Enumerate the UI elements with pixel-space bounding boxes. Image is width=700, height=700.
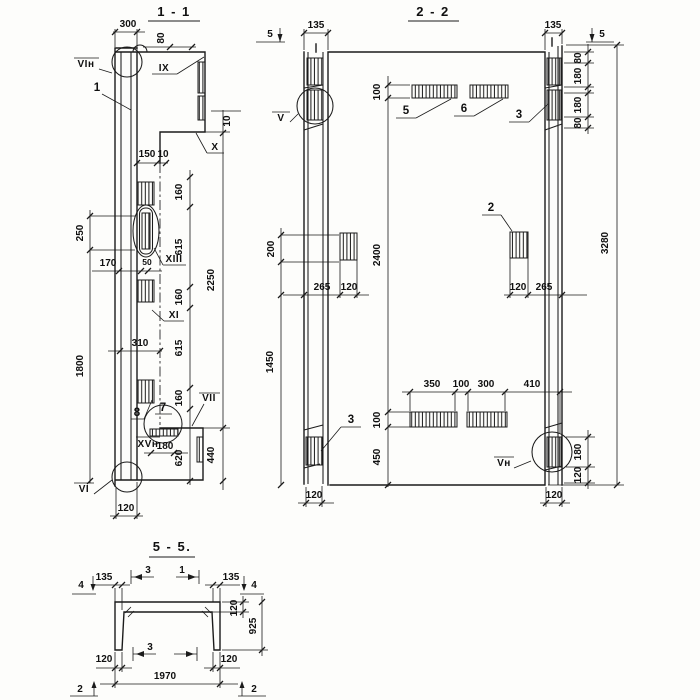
part-label-2: 2 — [488, 202, 494, 214]
engineering-drawing: 1 - 1 300 80 VIн 1 IX X 10 150 10 160 61… — [0, 0, 700, 700]
mark-vi-n: VIн — [78, 59, 95, 70]
dim-135-right: 135 — [545, 20, 562, 31]
embed-plate-hatch — [547, 58, 561, 85]
dim-100-top: 100 — [372, 83, 383, 100]
mark-vii: VII — [202, 393, 216, 404]
channel-outline — [115, 602, 220, 650]
mark-xiii: XIII — [165, 254, 182, 265]
dim-450: 450 — [372, 448, 383, 465]
dim-80a: 80 — [573, 52, 584, 64]
part-label-1: 1 — [94, 82, 101, 94]
dim-10-top: 10 — [222, 115, 233, 127]
dim-1450: 1450 — [265, 350, 276, 373]
dim-180c: 180 — [573, 443, 584, 460]
dim-310: 310 — [132, 338, 149, 349]
dim-50: 50 — [142, 257, 152, 267]
dim-620: 620 — [174, 449, 185, 466]
dim-120c: 120 — [573, 466, 584, 483]
dim-160c: 160 — [174, 389, 185, 406]
embed-plate-hatch — [467, 412, 507, 427]
dim-10: 10 — [157, 149, 169, 160]
part-label-7: 7 — [160, 402, 166, 414]
dim-120: 120 — [118, 503, 135, 514]
dim-925: 925 — [248, 617, 259, 634]
embed-plate-hatch — [150, 429, 178, 436]
embed-plate-hatch — [412, 85, 457, 98]
embed-plate-hatch — [470, 85, 508, 98]
dimension-ticks — [112, 582, 265, 687]
section-title: 5 - 5. — [153, 539, 192, 554]
part-label-5: 5 — [403, 105, 410, 117]
dim-440: 440 — [206, 446, 217, 463]
dim-200: 200 — [266, 240, 277, 257]
dim-160b: 160 — [174, 288, 185, 305]
embed-plate-hatch — [198, 96, 205, 120]
panel-outline — [115, 48, 205, 486]
dim-120-bottom-right: 120 — [221, 654, 238, 665]
cut-mark-3-bottom: 3 — [147, 642, 153, 653]
dim-250: 250 — [75, 224, 86, 241]
embed-plate-hatch — [198, 62, 205, 93]
section-1-1: 1 - 1 300 80 VIн 1 IX X 10 150 10 160 61… — [74, 4, 241, 519]
mark-ix: IX — [159, 63, 169, 74]
dim-120a: 120 — [341, 282, 358, 293]
dim-100: 100 — [453, 379, 470, 390]
dim-2400: 2400 — [372, 243, 383, 266]
cut-mark-2-left: 2 — [77, 684, 83, 695]
embed-plate-hatch — [547, 90, 561, 120]
dim-80b: 80 — [573, 117, 584, 129]
dim-80: 80 — [156, 32, 167, 44]
dim-120-flange: 120 — [229, 599, 240, 616]
section-5-5: 5 - 5. 4 135 3 1 135 4 120 925 120 3 120… — [70, 539, 268, 696]
dim-2250: 2250 — [206, 268, 217, 291]
mark-xi: XI — [169, 310, 179, 321]
cut-mark-3-top: 3 — [145, 565, 151, 576]
dim-120-bottom-left: 120 — [96, 654, 113, 665]
embed-plate-hatch — [137, 280, 154, 302]
embed-plate-hatch — [307, 58, 323, 85]
dim-265b: 265 — [536, 282, 553, 293]
dim-170: 170 — [100, 258, 117, 269]
embed-plate-hatch — [137, 380, 154, 403]
dim-300: 300 — [478, 379, 495, 390]
drawing-sheet: 1 - 1 300 80 VIн 1 IX X 10 150 10 160 61… — [0, 0, 700, 700]
mark-x: X — [211, 142, 218, 153]
embed-plate-hatch — [137, 182, 154, 205]
dim-150: 150 — [139, 149, 156, 160]
dim-350: 350 — [424, 379, 441, 390]
embed-plate-hatch — [340, 233, 357, 260]
dim-135-left: 135 — [308, 20, 325, 31]
dim-100-bottom: 100 — [372, 411, 383, 428]
part-label-3-top: 3 — [516, 109, 522, 121]
dim-120b: 120 — [510, 282, 527, 293]
cut-mark-4-left: 4 — [78, 580, 84, 591]
embed-plate-hatch — [410, 412, 457, 427]
section-title: 1 - 1 — [157, 4, 191, 19]
embed-plate-hatch — [197, 437, 203, 462]
dimension-ticks — [278, 30, 620, 506]
dim-180b: 180 — [573, 96, 584, 113]
dim-120-bottom-right: 120 — [546, 490, 563, 501]
dim-410: 410 — [524, 379, 541, 390]
mark-v: V — [277, 113, 284, 124]
cut-mark-1-top: 1 — [179, 565, 185, 576]
dim-615a: 615 — [174, 238, 185, 255]
section-2-2: 2 - 2 5 5 135 135 80 180 180 80 3280 100… — [256, 4, 624, 507]
mark-v-n: Vн — [497, 458, 511, 469]
dim-300: 300 — [120, 19, 137, 30]
dim-180a: 180 — [573, 67, 584, 84]
embed-plate-hatch — [547, 437, 561, 467]
embed-plate-hatch — [510, 232, 528, 258]
embed-plate-hatch — [306, 437, 322, 465]
dim-135-left: 135 — [96, 572, 113, 583]
dim-1970: 1970 — [154, 671, 177, 682]
cut-mark-2-right: 2 — [251, 684, 257, 695]
mark-xv-n: XVн — [138, 439, 159, 450]
part-label-8: 8 — [134, 407, 141, 419]
part-label-3-bottom: 3 — [348, 414, 354, 426]
cut-mark-5-right: 5 — [599, 29, 605, 40]
part-label-6: 6 — [461, 103, 467, 115]
dim-3280: 3280 — [600, 231, 611, 254]
cut-mark-4-right: 4 — [251, 580, 257, 591]
dim-615b: 615 — [174, 339, 185, 356]
dim-160a: 160 — [174, 183, 185, 200]
dim-180: 180 — [157, 441, 174, 452]
cut-mark-5-left: 5 — [267, 29, 273, 40]
column-inner-lines — [121, 52, 131, 480]
dim-1800: 1800 — [75, 354, 86, 377]
dim-120-bottom-left: 120 — [306, 490, 323, 501]
embed-plate-hatch — [142, 213, 150, 249]
section-title: 2 - 2 — [416, 4, 450, 19]
mark-vi: VI — [79, 484, 89, 495]
embed-plate-hatch — [307, 90, 323, 120]
dim-265a: 265 — [314, 282, 331, 293]
dim-135-right: 135 — [223, 572, 240, 583]
